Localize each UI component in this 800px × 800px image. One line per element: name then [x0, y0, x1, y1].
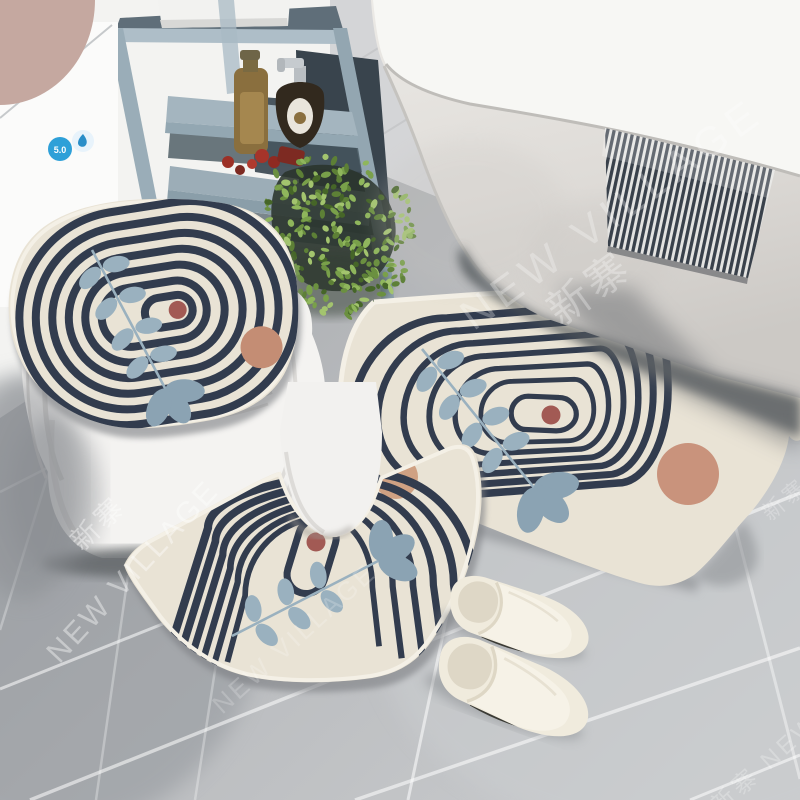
svg-text:NEW VILLAGE: NEW VILLAGE	[206, 557, 382, 719]
svg-text:新寨 NEW: 新寨 NEW	[706, 709, 800, 800]
svg-text:新寨: 新寨	[65, 490, 133, 557]
svg-text:NEW VILLAGE: NEW VILLAGE	[40, 474, 225, 669]
svg-text:新寨: 新寨	[757, 473, 800, 526]
